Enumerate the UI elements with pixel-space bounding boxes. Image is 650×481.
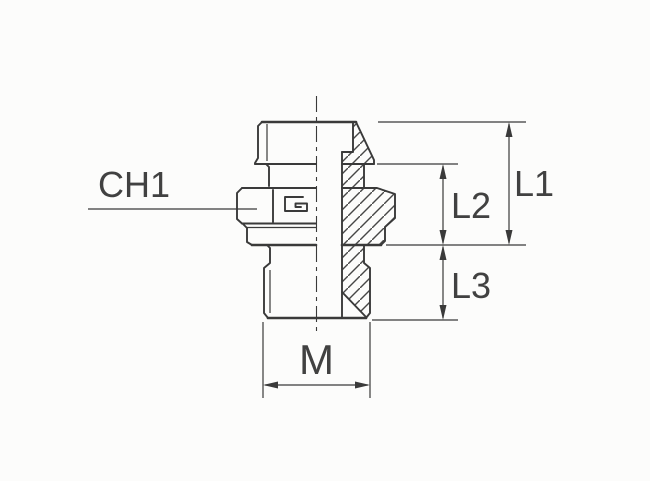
technical-drawing-canvas: CH1 L1 L2 L3 M — [0, 0, 650, 481]
dimension-l2: L2 — [440, 164, 492, 245]
dimension-l3: L3 — [440, 245, 492, 320]
dimension-m: M — [263, 336, 370, 389]
dimension-l1: L1 — [506, 122, 555, 245]
brand-logo-icon — [285, 197, 307, 211]
ch1-label: CH1 — [98, 164, 170, 205]
fitting-section-drawing: CH1 L1 L2 L3 M — [0, 0, 650, 481]
l3-label: L3 — [451, 265, 491, 306]
m-label: M — [299, 336, 334, 383]
l2-label: L2 — [451, 185, 491, 226]
dimension-ch1: CH1 — [88, 164, 257, 209]
l1-label: L1 — [514, 163, 554, 204]
